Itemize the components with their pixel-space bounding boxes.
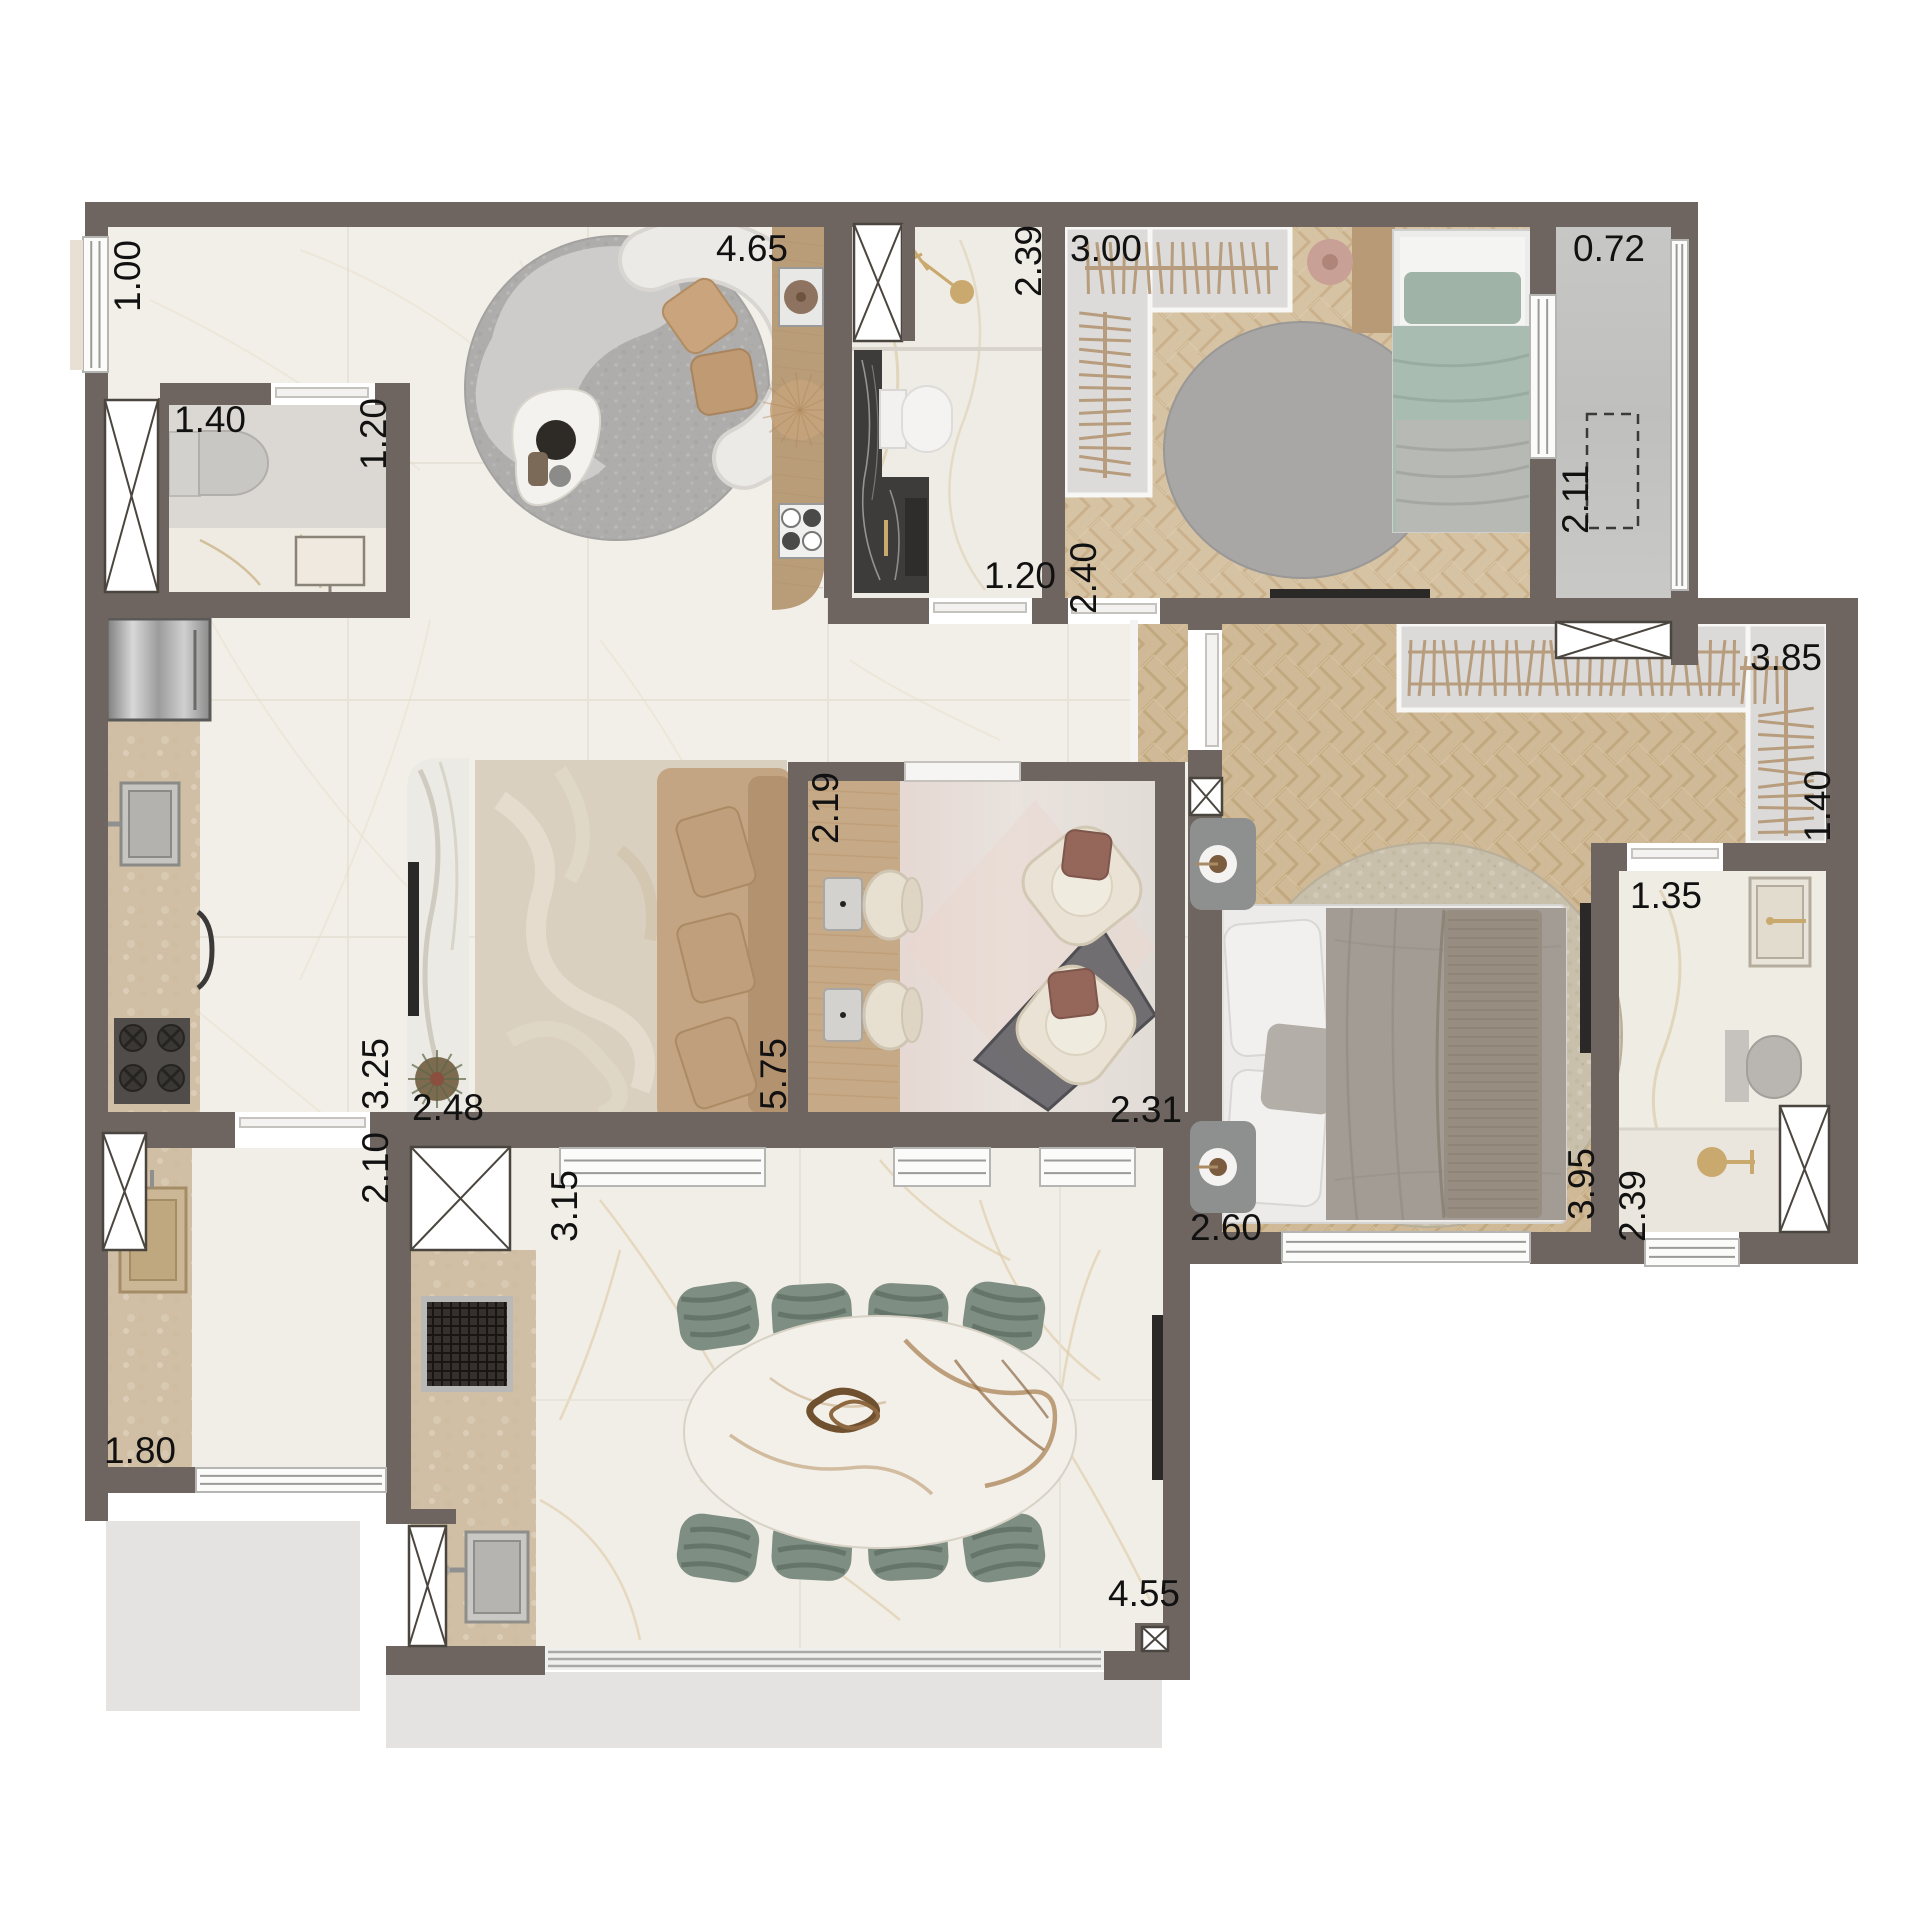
svg-text:4.65: 4.65 <box>716 228 788 269</box>
svg-text:5.75: 5.75 <box>753 1038 794 1110</box>
svg-text:3.95: 3.95 <box>1561 1148 1602 1220</box>
svg-text:3.25: 3.25 <box>355 1038 396 1110</box>
svg-text:2.48: 2.48 <box>412 1087 484 1128</box>
svg-text:1.40: 1.40 <box>1797 770 1838 842</box>
svg-text:2.11: 2.11 <box>1555 465 1596 534</box>
svg-text:2.60: 2.60 <box>1190 1207 1262 1248</box>
svg-text:3.85: 3.85 <box>1750 637 1822 678</box>
svg-text:2.19: 2.19 <box>805 772 846 844</box>
svg-text:1.35: 1.35 <box>1630 875 1702 916</box>
svg-text:3.15: 3.15 <box>544 1170 585 1242</box>
svg-text:2.39: 2.39 <box>1008 225 1049 297</box>
svg-text:1.00: 1.00 <box>107 240 148 312</box>
svg-text:1.20: 1.20 <box>353 398 394 470</box>
svg-text:2.10: 2.10 <box>355 1132 396 1204</box>
svg-text:2.39: 2.39 <box>1612 1170 1653 1242</box>
svg-text:4.55: 4.55 <box>1108 1573 1180 1614</box>
svg-text:1.20: 1.20 <box>984 555 1056 596</box>
svg-text:1.80: 1.80 <box>104 1430 176 1471</box>
svg-text:3.00: 3.00 <box>1070 228 1142 269</box>
svg-text:2.40: 2.40 <box>1063 542 1104 614</box>
svg-text:1.40: 1.40 <box>174 399 246 440</box>
svg-text:2.31: 2.31 <box>1110 1089 1182 1130</box>
svg-text:0.72: 0.72 <box>1573 228 1645 269</box>
